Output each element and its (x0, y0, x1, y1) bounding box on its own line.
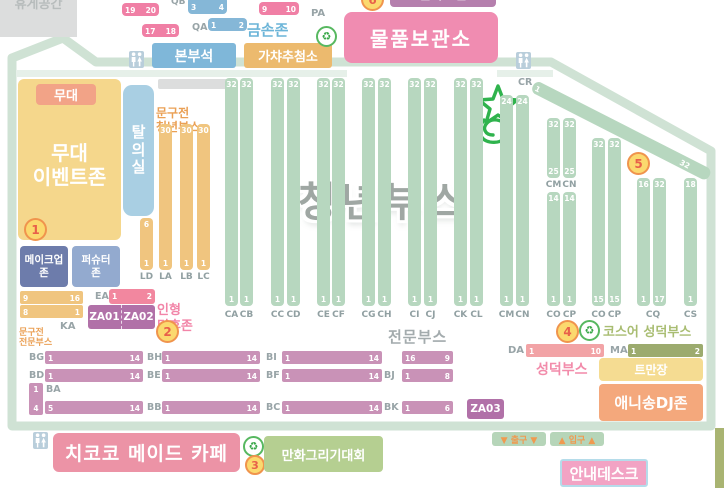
booth-number: 18 (166, 27, 176, 36)
stage-event-zone-text: 무대 이벤트존 (33, 142, 107, 189)
column-label-cm: CM (498, 310, 515, 320)
booth-number: 9 (23, 294, 28, 303)
booth-column-cs: 181 (684, 178, 697, 306)
booth-column-lb: 301 (180, 124, 193, 270)
column-label-lb: LB (178, 272, 195, 282)
booth-column-ci: 321 (408, 78, 421, 306)
booth-number: 4 (219, 3, 224, 12)
label-ea: EA (95, 291, 109, 302)
label-ma: MA (610, 345, 628, 356)
booth-number: 1 (533, 84, 542, 94)
booth-number: 2 (239, 21, 244, 30)
booth-number: 6 (140, 220, 153, 229)
booth-column-ck: 321 (454, 78, 467, 306)
label-ba: BA (46, 384, 61, 395)
rest-area-label: 휴게공간 (0, 0, 77, 12)
pro-booth-title-text: 전문부스 (388, 328, 447, 346)
booth-number: 1 (563, 295, 576, 304)
booth-number: 32 (563, 120, 576, 129)
booth-number: 1 (180, 259, 193, 268)
column-label-la: LA (157, 272, 174, 282)
grey-bar (158, 79, 231, 89)
exit-sign-text: ▼ 출구 ▼ (501, 433, 538, 446)
booth-number: 1 (165, 354, 170, 363)
booth-number: 32 (362, 80, 375, 89)
booth-number: 32 (332, 80, 345, 89)
circled-number-5: 5 (627, 152, 650, 175)
booth-column-cq: 161 (637, 178, 650, 306)
row-label-bc: BC (266, 402, 280, 413)
booth-bar-bj: 18 (402, 369, 453, 382)
za02-cell: ZA02 (122, 305, 155, 329)
booth-number: 14 (247, 354, 257, 363)
za01-cell: ZA01 (88, 305, 122, 329)
circled-number-text: 4 (563, 325, 571, 339)
clipped-sign-box: 팔아드림 (390, 0, 496, 7)
booth-number: 14 (247, 372, 257, 381)
booth-column-ce: 321 (317, 78, 330, 306)
booth-number: 1 (165, 372, 170, 381)
column-label-cs: CS (682, 310, 699, 320)
booth-number: 1 (159, 259, 172, 268)
stationery-pro-text: 문구전 전문부스 (19, 328, 52, 349)
label-da: DA (508, 345, 524, 356)
booth-bar-qb-3-4: 3 4 (188, 0, 227, 14)
booth-number: 5 (48, 404, 53, 413)
booth-column-cm: 3225 (547, 118, 560, 178)
booth-bar-seg: 169 (402, 351, 453, 364)
column-label-lc: LC (195, 272, 212, 282)
pro-booth-title: 전문부스 (388, 326, 447, 347)
booth-number: 1 (197, 259, 210, 268)
circled-number-text: 5 (634, 157, 642, 171)
booth-number: 1 (529, 347, 534, 356)
circled-number-text: 3 (251, 459, 259, 472)
booth-number: 8 (23, 308, 28, 317)
booth-column-la: 301 (159, 124, 172, 270)
label-qa: QA (192, 22, 207, 33)
booth-number: 15 (608, 295, 621, 304)
booth-number: 9 (262, 5, 267, 14)
stage-box: 무대 (36, 84, 96, 105)
booth-number: 1 (287, 295, 300, 304)
booth-column-seg: 3217 (653, 178, 666, 306)
booth-column-cf: 321 (332, 78, 345, 306)
booth-number: 32 (608, 140, 621, 149)
wall-inner-band (17, 70, 347, 77)
column-label-ck: CK (452, 310, 469, 320)
booth-number: 1 (408, 295, 421, 304)
booth-number: 32 (592, 140, 605, 149)
booth-number: 1 (547, 295, 560, 304)
row-label-be: BE (147, 370, 161, 381)
gacha-draw-box: 가챠추첨소 (244, 43, 332, 68)
makeup-zone-label: 메이크업 존 (25, 254, 64, 279)
restroom-icon (33, 432, 48, 449)
booth-column-ca: 321 (225, 78, 238, 306)
booth-bar-bi: 114 (282, 351, 382, 364)
booth-column-co: 3215 (592, 138, 605, 306)
storage-label: 물품보관소 (370, 23, 472, 52)
cosplayer-booth-label: 코스어 성덕부스 (603, 321, 691, 340)
booth-number: 32 (678, 157, 691, 170)
dressing-room-label: 탈 의 실 (132, 124, 146, 177)
booth-number: 2 (695, 347, 700, 356)
cartoon-contest-box: 만화그리기대회 (264, 436, 383, 472)
column-label-co: CO (545, 310, 562, 320)
booth-number: 1 (405, 404, 410, 413)
column-label-co: CO (590, 310, 607, 320)
booth-bar-bb: 114 (162, 401, 260, 414)
booth-number: 1 (378, 295, 391, 304)
booth-column-cg: 321 (362, 78, 375, 306)
booth-column-cp: 3215 (608, 138, 621, 306)
booth-column-cp: 141 (563, 192, 576, 306)
column-label-cp: CP (561, 310, 578, 320)
column-label-cq: CQ (639, 310, 667, 320)
recycle-icon: ♻ (579, 320, 600, 341)
circled-number-4: 4 (556, 320, 579, 343)
booth-bar-ea: 1 2 (109, 289, 155, 304)
storage-box: 물품보관소 (344, 12, 498, 63)
info-desk-box: 안내데스크 (560, 459, 648, 487)
booth-number: 1 (75, 308, 80, 317)
booth-number: 1 (48, 372, 53, 381)
booth-number: 32 (547, 120, 560, 129)
booth-number: 1 (48, 354, 53, 363)
circled-number-2: 2 (156, 320, 179, 343)
booth-number: 24 (516, 97, 529, 106)
za03-label: ZA03 (470, 403, 500, 415)
pershooter-zone-label: 퍼슈터 존 (82, 254, 111, 279)
row-label-bk: BK (384, 402, 399, 413)
booth-bar-da: 1 10 (526, 344, 604, 357)
booth-column-cj: 321 (424, 78, 437, 306)
restroom-icon (129, 51, 144, 68)
booth-number: 1 (454, 295, 467, 304)
booth-number: 24 (500, 97, 513, 106)
circled-number-3: 3 (245, 455, 265, 475)
booth-number: 1 (211, 21, 216, 30)
wall-inner-band-right (497, 70, 553, 77)
booth-column-lc: 301 (197, 124, 210, 270)
column-label-cl: CL (468, 310, 485, 320)
booth-column-cd: 321 (287, 78, 300, 306)
booth-number: 1 (424, 295, 437, 304)
booth-number: 14 (369, 372, 379, 381)
column-label-cj: CJ (422, 310, 439, 320)
column-label-ch: CH (376, 310, 393, 320)
booth-number: 1 (285, 354, 290, 363)
booth-number: 30 (159, 126, 172, 135)
booth-number: 17 (145, 27, 155, 36)
stage-event-zone-label: 무대 이벤트존 (18, 138, 121, 194)
dressing-room-box: 탈 의 실 (123, 85, 154, 216)
booth-column-ba: 1 4 (29, 383, 43, 415)
booth-number: 1 (631, 347, 636, 356)
circled-number-1: 1 (24, 218, 47, 241)
circled-number-text: 1 (31, 223, 39, 237)
booth-number: 1 (362, 295, 375, 304)
booth-number: 1 (684, 295, 697, 304)
column-label-cn: CN (561, 180, 578, 190)
booth-number: 1 (405, 372, 410, 381)
anisong-dj-zone-box: 애니송DJ존 (599, 384, 703, 421)
booth-bar-pa-9-10: 9 10 (259, 2, 299, 15)
booth-number: 1 (225, 295, 238, 304)
exit-sign: ▼ 출구 ▼ (492, 432, 546, 446)
booth-column-ld: 61 (140, 218, 153, 270)
makeup-zone-box: 메이크업 존 (20, 246, 68, 287)
booth-bar-pa-19-20: 19 20 (122, 3, 159, 16)
booth-number: 1 (317, 295, 330, 304)
info-desk-label: 안내데스크 (569, 463, 638, 484)
booth-number: 8 (445, 372, 450, 381)
booth-bar-be: 114 (162, 369, 260, 382)
booth-number: 1 (271, 295, 284, 304)
booth-number: 14 (563, 194, 576, 203)
booth-bar-bg: 114 (45, 351, 143, 364)
booth-number: 1 (240, 295, 253, 304)
recycle-icon: ♻ (243, 436, 264, 457)
row-label-bb: BB (147, 402, 161, 413)
column-label-cf: CF (330, 310, 347, 320)
booth-number: 2 (147, 292, 152, 301)
booth-column-cb: 321 (240, 78, 253, 306)
entrance-sign: ▲ 입구 ▲ (550, 432, 604, 446)
booth-number: 32 (317, 80, 330, 89)
column-label-cg: CG (360, 310, 377, 320)
booth-number: 10 (286, 5, 296, 14)
booth-bar-pa-17-18: 17 18 (142, 24, 179, 37)
booth-column-cn: 241 (516, 95, 529, 306)
booth-number: 1 (285, 404, 290, 413)
column-label-cn: CN (514, 310, 531, 320)
booth-number: 3 (191, 3, 196, 12)
booth-bar-ma: 1 2 (628, 344, 703, 357)
booth-number: 25 (547, 167, 560, 176)
restroom-icon (516, 52, 531, 69)
booth-bar-bk: 16 (402, 401, 453, 414)
pershooter-zone-box: 퍼슈터 존 (72, 246, 120, 287)
booth-number: 1 (140, 259, 153, 268)
booth-bar-bc: 114 (282, 401, 382, 414)
column-label-cc: CC (269, 310, 286, 320)
booth-number: 32 (225, 80, 238, 89)
rest-area: 휴게공간 (0, 0, 77, 37)
booth-number: 20 (146, 6, 156, 15)
column-label-cp: CP (606, 310, 623, 320)
circled-number-text: 6 (368, 0, 376, 7)
entrance-sign-text: ▲ 입구 ▲ (559, 433, 596, 446)
booth-number: 1 (637, 295, 650, 304)
booth-number: 19 (125, 6, 135, 15)
booth-number: 16 (405, 354, 415, 363)
booth-number: 1 (285, 372, 290, 381)
column-label-cm: CM (545, 180, 562, 190)
booth-number: 10 (591, 347, 601, 356)
booth-column-cl: 321 (470, 78, 483, 306)
row-label-bh: BH (147, 352, 162, 363)
booth-number: 15 (592, 295, 605, 304)
booth-bar-bh: 114 (162, 351, 260, 364)
maid-cafe-box: 치코코 메이드 카페 (53, 433, 240, 472)
booth-number: 14 (369, 354, 379, 363)
seongdeok-booth-text: 성덕부스 (536, 362, 588, 378)
za03-box: ZA03 (467, 399, 504, 419)
anisong-dj-zone-label: 애니송DJ존 (614, 392, 687, 413)
booth-number: 32 (271, 80, 284, 89)
booth-number: 18 (684, 180, 697, 189)
booth-number: 1 (112, 292, 117, 301)
booth-column-ch: 321 (378, 78, 391, 306)
booth-number: 1 (29, 385, 43, 394)
gold-hands-zone-label: 금손존 (247, 19, 288, 40)
booth-column-cn: 3225 (563, 118, 576, 178)
seongdeok-booth-label: 성덕부스 (536, 359, 588, 379)
row-label-bi: BI (266, 352, 277, 363)
booth-bar-bf: 114 (282, 369, 382, 382)
booth-number: 9 (445, 354, 450, 363)
column-label-cd: CD (285, 310, 302, 320)
booth-number: 32 (470, 80, 483, 89)
booth-number: 32 (287, 80, 300, 89)
booth-bar-qa-1-2: 1 2 (208, 18, 247, 31)
booth-number: 16 (637, 180, 650, 189)
booth-bar-seg: 514 (45, 401, 143, 414)
booth-number: 1 (500, 295, 513, 304)
column-label-ld: LD (138, 272, 155, 282)
label-pa: PA (311, 8, 325, 19)
clipped-sign-label: 팔아드림 (419, 0, 467, 3)
booth-number: 14 (547, 194, 560, 203)
booth-column-co: 141 (547, 192, 560, 306)
booth-number: 1 (165, 404, 170, 413)
booth-number: 6 (445, 404, 450, 413)
booth-number: 32 (240, 80, 253, 89)
booth-number: 1 (470, 295, 483, 304)
booth-column-cc: 321 (271, 78, 284, 306)
booth-number: 1 (516, 295, 529, 304)
booth-number: 4 (29, 404, 43, 413)
stationery-pro-label: 문구전 전문부스 (19, 317, 52, 349)
hq-box: 본부석 (152, 43, 236, 68)
booth-number: 30 (197, 126, 210, 135)
za01-za02-box: ZA01 ZA02 (88, 305, 155, 329)
cosplayer-booth-text: 코스어 성덕부스 (603, 325, 691, 340)
row-label-bg: BG (29, 352, 44, 363)
twitter-meetup-label: 트만장 (634, 361, 667, 378)
booth-number: 32 (424, 80, 437, 89)
booth-number: 32 (408, 80, 421, 89)
booth-number: 14 (130, 404, 140, 413)
booth-number: 25 (563, 167, 576, 176)
maid-cafe-label: 치코코 메이드 카페 (65, 439, 228, 466)
row-label-bf: BF (266, 370, 280, 381)
booth-number: 14 (130, 354, 140, 363)
booth-column-cm: 241 (500, 95, 513, 306)
event-floor-map: 휴게공간 19 20 17 18 QB 3 4 QA 1 2 금손존 9 10 … (0, 0, 724, 488)
column-label-ci: CI (406, 310, 423, 320)
twitter-meetup-box: 트만장 (599, 358, 703, 381)
booth-number: 30 (180, 126, 193, 135)
booth-number: 16 (70, 294, 80, 303)
row-label-bj: BJ (384, 370, 395, 381)
booth-number: 32 (653, 180, 666, 189)
wall-olive-bar (715, 428, 724, 488)
label-ka: KA (60, 321, 76, 332)
booth-number: 32 (454, 80, 467, 89)
booth-number: 14 (369, 404, 379, 413)
cartoon-contest-label: 만화그리기대회 (282, 445, 366, 464)
booth-bar-bd: 114 (45, 369, 143, 382)
booth-number: 14 (247, 404, 257, 413)
recycle-icon: ♻ (316, 26, 337, 47)
booth-number: 17 (653, 295, 666, 304)
booth-bar-stationery-a: 9 16 (20, 291, 83, 304)
gacha-draw-label: 가챠추첨소 (258, 46, 318, 65)
circled-number-text: 2 (163, 325, 171, 339)
stage-label: 무대 (54, 85, 78, 104)
column-label-cb: CB (238, 310, 255, 320)
hq-label: 본부석 (175, 46, 214, 66)
booth-number: 14 (130, 372, 140, 381)
row-label-bd: BD (29, 370, 44, 381)
label-qb: QB (171, 0, 186, 7)
booth-number: 1 (332, 295, 345, 304)
booth-number: 32 (378, 80, 391, 89)
